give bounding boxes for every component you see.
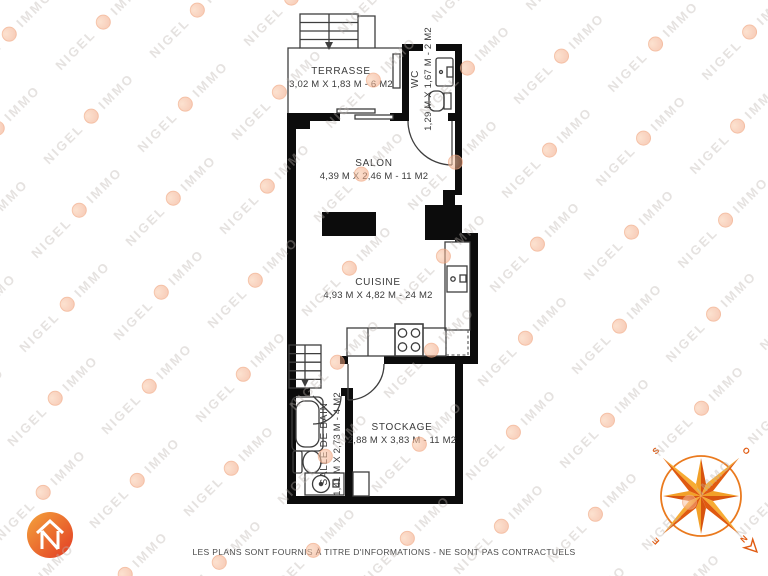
room-name: TERRASSE (289, 65, 393, 78)
compass-label-o: O (740, 445, 752, 457)
room-label-wc: WC 1,29 M X 1,67 M - 2 M2 (409, 27, 435, 131)
compass-label-n: N (738, 533, 749, 544)
disclaimer-text: LES PLANS SONT FOURNIS À TITRE D'INFORMA… (0, 547, 768, 557)
room-label-cuisine: CUISINE 4,93 M X 4,82 M - 24 M2 (323, 276, 432, 302)
storage-door (348, 364, 384, 400)
room-dims: 2,88 M X 3,83 M - 11 M2 (348, 434, 456, 447)
room-label-terrasse: TERRASSE 3,02 M X 1,83 M - 6 M2 (289, 65, 393, 91)
compass-rose-icon: S O E N (641, 432, 761, 564)
room-dims: 4,39 M X 2,46 M - 11 M2 (320, 170, 428, 183)
page: TERRASSE 3,02 M X 1,83 M - 6 M2 WC 1,29 … (0, 0, 768, 576)
kitchen-sink-icon (447, 266, 467, 292)
room-label-salle-de-bain: SALLE DE BAIN 1,41 M X 2,73 M - 4 M2 (318, 392, 344, 496)
sliding-door (337, 109, 393, 119)
storage-closet (353, 472, 369, 496)
fireplace-block (322, 212, 376, 236)
appliance-dashed (446, 330, 468, 355)
stove-icon (395, 324, 423, 356)
room-name: STOCKAGE (348, 421, 456, 434)
stairs-up-icon (300, 14, 358, 50)
room-name: SALON (320, 157, 428, 170)
room-dims: 4,93 M X 4,82 M - 24 M2 (323, 289, 432, 302)
room-name: SALLE DE BAIN (318, 392, 331, 496)
room-dims: 3,02 M X 1,83 M - 6 M2 (289, 78, 393, 91)
room-label-salon: SALON 4,39 M X 2,46 M - 11 M2 (320, 157, 428, 183)
room-dims: 1,41 M X 2,73 M - 4 M2 (331, 392, 344, 496)
terrace-door (393, 54, 400, 88)
toilet-icon (293, 451, 321, 473)
room-name: WC (409, 27, 422, 131)
room-label-stockage: STOCKAGE 2,88 M X 3,83 M - 11 M2 (348, 421, 456, 447)
compass-label-s: S (650, 445, 661, 456)
compass-label-e: E (650, 536, 661, 547)
wc-sink-icon (436, 58, 453, 86)
room-name: CUISINE (323, 276, 432, 289)
room-dims: 1,29 M X 1,67 M - 2 M2 (422, 27, 435, 131)
